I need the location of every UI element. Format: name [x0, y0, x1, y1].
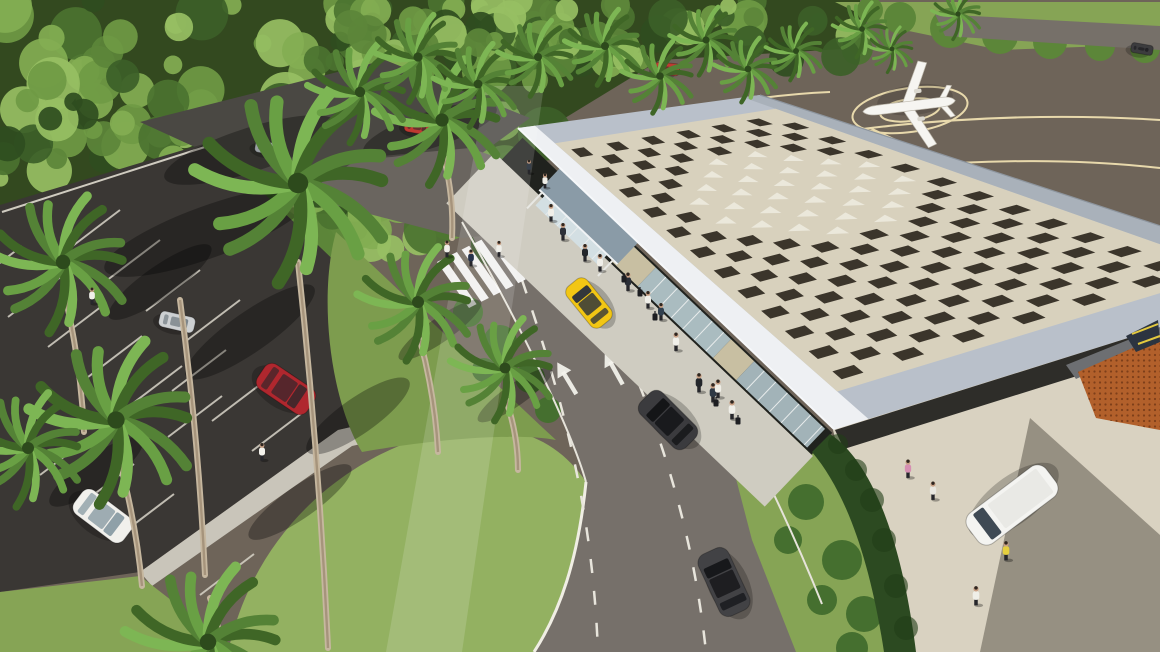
airport-terminal-rendering [0, 0, 1160, 652]
rendering-canvas [0, 0, 1160, 652]
